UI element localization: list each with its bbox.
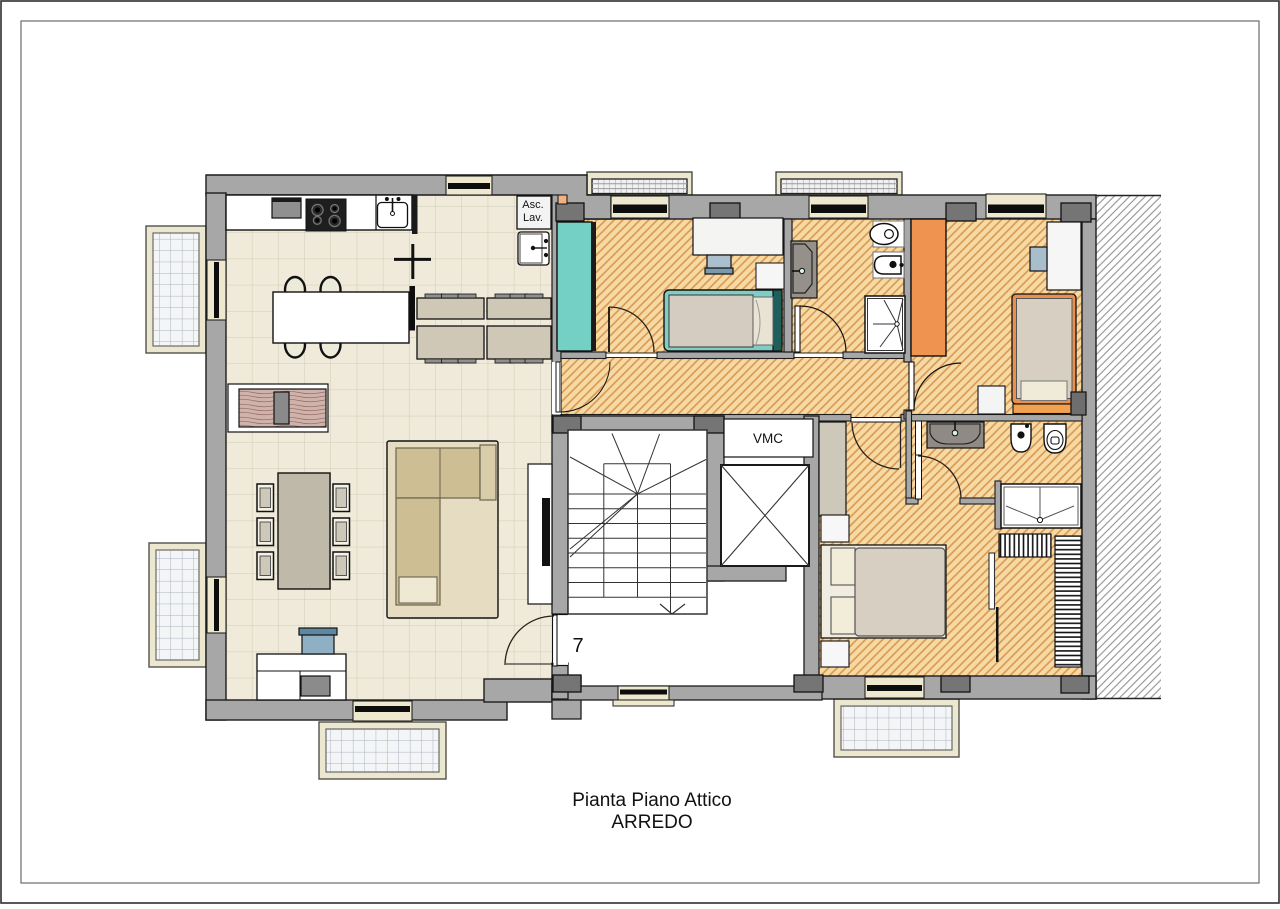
svg-text:Asc.: Asc. xyxy=(522,199,543,211)
svg-text:7: 7 xyxy=(572,635,583,657)
svg-text:Lav.: Lav. xyxy=(523,212,543,224)
svg-text:VMC: VMC xyxy=(753,431,783,446)
svg-text:ARREDO: ARREDO xyxy=(611,812,692,833)
svg-text:Pianta Piano Attico: Pianta Piano Attico xyxy=(572,790,732,811)
